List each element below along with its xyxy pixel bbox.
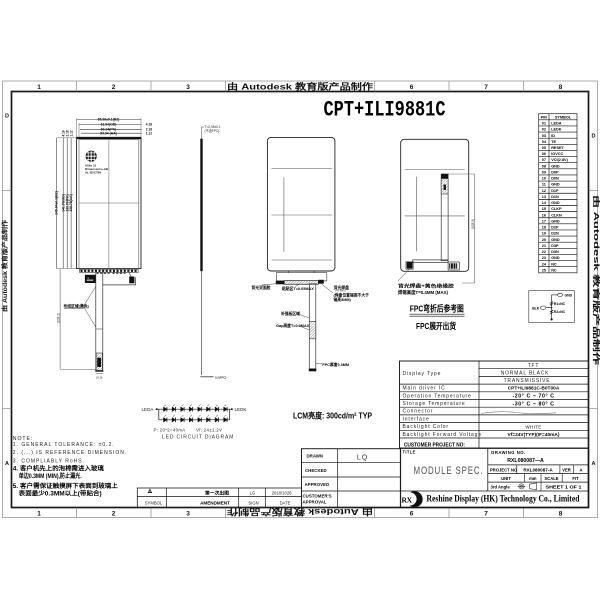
svg-text:DRAWN: DRAWN <box>307 454 324 459</box>
svg-text:Storage Temperature: Storage Temperature <box>403 401 466 407</box>
svg-text:25: 25 <box>542 268 546 272</box>
svg-text:0.5(FPC): 0.5(FPC) <box>215 375 226 379</box>
svg-text:FPC弯折后参考图: FPC弯折后参考图 <box>410 303 464 313</box>
svg-text:59.94 (AA): 59.94 (AA) <box>100 131 117 135</box>
svg-text:AMENDMENT: AMENDMENT <box>200 501 230 506</box>
svg-text:IOVCC: IOVCC <box>551 152 563 156</box>
svg-text:SYMBOL: SYMBOL <box>145 500 163 505</box>
svg-text:01: 01 <box>542 122 546 126</box>
svg-text:APPROVED: APPROVED <box>305 482 330 487</box>
svg-text:PROJECT NO: PROJECT NO <box>490 468 518 473</box>
svg-text:RXL080087—A: RXL080087—A <box>507 458 544 464</box>
svg-text:3. COMPLIABLY RoHS.: 3. COMPLIABLY RoHS. <box>13 459 85 465</box>
svg-text:Backlight Forward Voltage: Backlight Forward Voltage <box>403 432 482 438</box>
svg-text:DATE: DATE <box>280 500 291 505</box>
svg-text:D2N: D2N <box>551 232 559 236</box>
svg-text:-20° C ~ 70° C: -20° C ~ 70° C <box>512 394 554 400</box>
svg-text:61.94(OD): 61.94(OD) <box>101 123 117 127</box>
svg-text:GND: GND <box>551 219 560 223</box>
svg-text:Display Type: Display Type <box>403 371 442 377</box>
svg-text:TITLE: TITLE <box>403 449 416 454</box>
svg-text:布线区域(黑色): 布线区域(黑色) <box>63 304 90 309</box>
svg-text:SHEET 1 OF 1: SHEET 1 OF 1 <box>546 485 583 490</box>
svg-text:由 Autodesk 教育版产品制作: 由 Autodesk 教育版产品制作 <box>592 195 600 365</box>
svg-text:CHECKED: CHECKED <box>305 468 327 473</box>
svg-text:10: 10 <box>542 177 546 181</box>
svg-text:16: 16 <box>542 213 546 217</box>
svg-text:TE: TE <box>551 140 556 144</box>
svg-text:WHITE: WHITE <box>525 424 541 429</box>
svg-text:LG: LG <box>250 491 256 496</box>
svg-text:(103.5): (103.5) <box>471 219 475 229</box>
svg-text:P: 20*2=40mA: P: 20*2=40mA <box>154 428 186 433</box>
svg-text:Interface: Interface <box>403 416 430 422</box>
svg-text:CPT+ILI9881C: CPT+ILI9881C <box>324 98 446 123</box>
svg-text:D3P: D3P <box>551 244 559 248</box>
svg-text:GND: GND <box>551 183 560 187</box>
svg-text:TFT: TFT <box>528 363 540 369</box>
svg-text:Backlight Color: Backlight Color <box>403 424 449 430</box>
svg-text:锡高5MM): 锡高5MM) <box>334 297 352 302</box>
svg-text:3: 3 <box>186 84 190 91</box>
svg-text:APPROVAL: APPROVAL <box>303 500 327 505</box>
svg-text:FPC展开出货: FPC展开出货 <box>416 321 456 331</box>
svg-text:NC: NC <box>551 262 557 266</box>
svg-text:R1=NC: R1=NC <box>554 302 566 306</box>
svg-text:3rd Angle: 3rd Angle <box>491 485 511 490</box>
svg-text:D2P: D2P <box>551 226 559 230</box>
svg-text:T=0.4MM: T=0.4MM <box>334 289 345 293</box>
svg-text:由 Autodesk 教育版产品制作: 由 Autodesk 教育版产品制作 <box>227 82 374 92</box>
svg-text:(9.0): (9.0) <box>96 375 102 379</box>
svg-text:145.94±0.1(BZ): 145.94±0.1(BZ) <box>55 191 59 215</box>
svg-text:背光双面胶: 背光双面胶 <box>252 285 271 290</box>
svg-text:第一次出图: 第一次出图 <box>205 490 229 497</box>
svg-text:11: 11 <box>542 183 546 187</box>
svg-text:MODULE SPEC.: MODULE SPEC. <box>414 465 484 477</box>
svg-text:NC: NC <box>551 268 557 272</box>
svg-text:LEDK: LEDK <box>551 128 562 132</box>
svg-text:表面最少0.3MM以上(带贴合): 表面最少0.3MM以上(带贴合) <box>18 490 102 498</box>
svg-text:DRAWING NO.: DRAWING NO. <box>491 450 525 455</box>
svg-text:PIN: PIN <box>541 115 548 119</box>
svg-text:ID: ID <box>551 134 555 138</box>
svg-text:13: 13 <box>542 195 546 199</box>
svg-text:138.78(AA): 138.78(AA) <box>69 194 73 212</box>
svg-text:12: 12 <box>542 189 546 193</box>
svg-text:SYMBOL: SYMBOL <box>555 115 572 119</box>
svg-text:GND: GND <box>565 294 573 298</box>
svg-text:D0N: D0N <box>551 177 559 181</box>
svg-text:2: 2 <box>112 511 116 518</box>
svg-text:Gap高度T=0.3MAX: Gap高度T=0.3MAX <box>276 323 310 328</box>
svg-text:CLKP: CLKP <box>551 207 562 211</box>
svg-text:Connector: Connector <box>403 409 434 415</box>
svg-text:FPC厚度0.3MM: FPC厚度0.3MM <box>322 362 349 367</box>
svg-text:GND: GND <box>551 201 560 205</box>
svg-text:(不含FPC): (不含FPC) <box>205 128 220 133</box>
svg-text:A: A <box>592 461 596 467</box>
svg-text:单边0.3MM (MIN),防止漏光.: 单边0.3MM (MIN),防止漏光. <box>19 472 82 480</box>
svg-text:CUSTOMER PROJECT NO:: CUSTOMER PROJECT NO: <box>404 442 465 448</box>
svg-text:由 Autodesk 教育版产品制作: 由 Autodesk 教育版产品制作 <box>226 507 373 517</box>
svg-text:BLK: BLK <box>532 306 540 310</box>
svg-text:08: 08 <box>542 164 546 168</box>
svg-text:3: 3 <box>186 511 190 518</box>
svg-text:18: 18 <box>542 226 546 230</box>
svg-text:D: D <box>5 114 9 120</box>
svg-text:VCI(2.8V): VCI(2.8V) <box>551 158 568 162</box>
svg-text:UNIT: UNIT <box>501 476 511 481</box>
svg-text:09: 09 <box>542 170 546 174</box>
svg-text:1.12: 1.12 <box>146 131 152 135</box>
svg-text:TRANSMISSIVE: TRANSMISSIVE <box>504 378 551 384</box>
svg-text:RX: RX <box>402 495 413 504</box>
svg-text:CUSTOMER'S: CUSTOMER'S <box>303 494 332 499</box>
svg-text:RXL080087-A: RXL080087-A <box>523 468 553 473</box>
svg-text:CLKN: CLKN <box>551 213 562 217</box>
svg-text:17: 17 <box>542 219 546 223</box>
svg-text:19: 19 <box>542 232 546 236</box>
svg-text:LEDA: LEDA <box>551 122 562 126</box>
svg-text:VER: VER <box>562 468 571 473</box>
svg-text:粘贴区T=0.05MAX: 粘贴区T=0.05MAX <box>281 286 314 291</box>
svg-text:20: 20 <box>542 238 546 242</box>
svg-text:SIGN: SIGN <box>248 500 258 505</box>
svg-text:06: 06 <box>542 152 546 156</box>
svg-text:07: 07 <box>542 158 546 162</box>
svg-text:GND: GND <box>551 164 560 168</box>
svg-text:-30° C ~ 80° C: -30° C ~ 80° C <box>512 401 554 407</box>
svg-text:02: 02 <box>542 128 546 132</box>
svg-text:RESET: RESET <box>551 146 564 150</box>
svg-text:A: A <box>5 461 9 467</box>
svg-text:6: 6 <box>410 84 414 91</box>
svg-text:LEDA: LEDA <box>142 407 155 412</box>
svg-text:D1N: D1N <box>551 195 559 199</box>
svg-text:Main driver IC: Main driver IC <box>403 386 446 392</box>
svg-text:2. (...) IS REFERENCE DIMENSIO: 2. (...) IS REFERENCE DIMENSION. <box>13 450 128 456</box>
svg-text:D0P: D0P <box>551 170 559 174</box>
svg-text:21: 21 <box>542 244 546 248</box>
svg-text:8: 8 <box>559 84 563 91</box>
svg-text:03: 03 <box>542 134 546 138</box>
svg-text:GND: GND <box>551 238 560 242</box>
svg-text:1: 1 <box>37 84 41 91</box>
svg-text:7: 7 <box>484 511 488 518</box>
svg-text:1. GENERAL TOLERANCE: ±0.2.: 1. GENERAL TOLERANCE: ±0.2. <box>13 442 115 448</box>
svg-text:mm: mm <box>529 476 537 481</box>
svg-text:GND: GND <box>551 256 560 260</box>
svg-text:1: 1 <box>37 511 41 518</box>
svg-text:(焊盘位置锡高不大于: (焊盘位置锡高不大于 <box>334 293 370 298</box>
svg-text:4. 客户机先上的泡棉需进入玻璃: 4. 客户机先上的泡棉需进入玻璃 <box>13 465 104 473</box>
svg-text:LEDK: LEDK <box>235 407 248 412</box>
svg-text:2: 2 <box>112 84 116 91</box>
svg-text:R2=NC: R2=NC <box>554 310 566 314</box>
svg-text:(103.2): (103.2) <box>56 313 60 323</box>
svg-text:2018/1026: 2018/1026 <box>272 491 292 496</box>
svg-text:CPT+ILI9881C-B0T00A: CPT+ILI9881C-B0T00A <box>508 386 560 392</box>
svg-text:Operation Temperature: Operation Temperature <box>403 393 472 399</box>
svg-text:D: D <box>592 134 596 140</box>
svg-text:15: 15 <box>542 207 546 211</box>
svg-text:7: 7 <box>484 84 488 91</box>
svg-text:A: A <box>579 468 582 473</box>
svg-text:焊锡高度T=0.4MM (MAX): 焊锡高度T=0.4MM (MAX) <box>398 289 449 296</box>
svg-text:22: 22 <box>542 250 546 254</box>
svg-text:LQ: LQ <box>357 454 368 461</box>
svg-text:D1P: D1P <box>551 189 559 193</box>
svg-text:Vf=24V(TYP)(IF=40mA): Vf=24V(TYP)(IF=40mA) <box>508 432 560 438</box>
svg-text:8: 8 <box>559 511 563 518</box>
svg-text:5. 客户需保证触摸屏下表面到玻璃上: 5. 客户需保证触摸屏下表面到玻璃上 <box>13 482 118 490</box>
svg-text:D3N: D3N <box>551 250 559 254</box>
svg-text:由 Autodesk 教育版产品制作: 由 Autodesk 教育版产品制作 <box>1 219 9 312</box>
svg-text:Reshine Display (HK) Technolog: Reshine Display (HK) Technology Co., Lim… <box>427 494 580 504</box>
svg-text:Vf: 24±1.2V: Vf: 24±1.2V <box>196 428 222 433</box>
svg-text:LED CIRCUIT DIAGRAM: LED CIRCUIT DIAGRAM <box>162 434 234 440</box>
svg-text:背光焊盘+黄色绝缘胶: 背光焊盘+黄色绝缘胶 <box>398 283 455 290</box>
svg-text:AL-B5C789: AL-B5C789 <box>85 171 101 175</box>
svg-text:1.12: 1.12 <box>69 130 73 136</box>
svg-text:FIT: FIT <box>572 476 579 481</box>
svg-text:6: 6 <box>410 511 414 518</box>
svg-text:4.18: 4.18 <box>146 123 152 127</box>
svg-text:05: 05 <box>542 146 546 150</box>
svg-text:23: 23 <box>542 256 546 260</box>
svg-text:LCM亮度: 300cd/m² TYP: LCM亮度: 300cd/m² TYP <box>293 410 373 420</box>
svg-text:65.36±0.1(BZ): 65.36±0.1(BZ) <box>98 118 120 122</box>
svg-text:NORMAL BLACK: NORMAL BLACK <box>501 371 550 377</box>
svg-text:SCALE: SCALE <box>544 476 558 481</box>
